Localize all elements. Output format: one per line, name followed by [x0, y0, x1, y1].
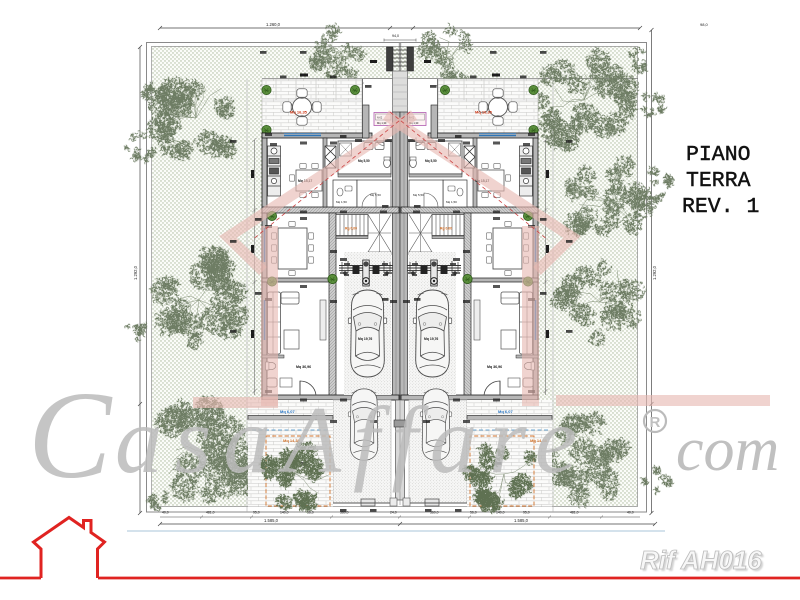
- svg-text:Mq 5,50: Mq 5,50: [425, 159, 437, 163]
- svg-text:Mq 36,96: Mq 36,96: [487, 365, 502, 369]
- svg-text:N-02: N-02: [377, 117, 383, 120]
- svg-text:Mq 5,50: Mq 5,50: [358, 159, 370, 163]
- svg-text:94,0: 94,0: [392, 34, 399, 38]
- svg-text:TERRA: TERRA: [686, 169, 751, 193]
- svg-text:98,0: 98,0: [700, 22, 709, 27]
- svg-text:140,0: 140,0: [280, 511, 289, 515]
- svg-text:1.292,0: 1.292,0: [133, 265, 138, 280]
- svg-text:Rif AH016: Rif AH016: [640, 545, 762, 575]
- svg-text:56,0: 56,0: [470, 511, 477, 515]
- svg-text:1.292,0: 1.292,0: [652, 265, 657, 280]
- svg-text:481,0: 481,0: [570, 511, 579, 515]
- svg-text:Mq 5,50: Mq 5,50: [413, 193, 424, 197]
- svg-text:95,0: 95,0: [253, 511, 260, 515]
- svg-text:40,0: 40,0: [627, 511, 634, 515]
- svg-text:PIANO: PIANO: [686, 143, 751, 167]
- svg-text:24,0: 24,0: [390, 511, 397, 515]
- svg-text:C: C: [28, 367, 113, 505]
- svg-text:95,0: 95,0: [523, 511, 530, 515]
- svg-text:Mq 36,96: Mq 36,96: [296, 365, 311, 369]
- svg-text:com: com: [676, 416, 779, 484]
- svg-text:R: R: [650, 414, 661, 431]
- svg-text:Mq 1,50: Mq 1,50: [336, 200, 347, 204]
- svg-text:Mq 1,50: Mq 1,50: [446, 200, 457, 204]
- svg-text:1.585,0: 1.585,0: [264, 518, 279, 523]
- svg-text:Mq 19,76: Mq 19,76: [424, 337, 438, 341]
- svg-text:1.585,0: 1.585,0: [514, 518, 529, 523]
- svg-text:Mq 19,76: Mq 19,76: [358, 337, 372, 341]
- svg-text:Mq 1,30: Mq 1,30: [377, 121, 387, 125]
- svg-text:asaAffare: asaAffare: [115, 387, 589, 493]
- svg-text:481,0: 481,0: [206, 511, 215, 515]
- svg-text:Rg 0,00: Rg 0,00: [440, 227, 452, 231]
- svg-text:Mq 16,35: Mq 16,35: [475, 110, 493, 115]
- svg-text:40,0: 40,0: [162, 511, 169, 515]
- svg-text:REV. 1: REV. 1: [682, 195, 759, 219]
- svg-text:1.260,0: 1.260,0: [266, 22, 281, 27]
- svg-text:Mq 16,35: Mq 16,35: [290, 110, 308, 115]
- svg-text:Rg 0,00: Rg 0,00: [345, 227, 357, 231]
